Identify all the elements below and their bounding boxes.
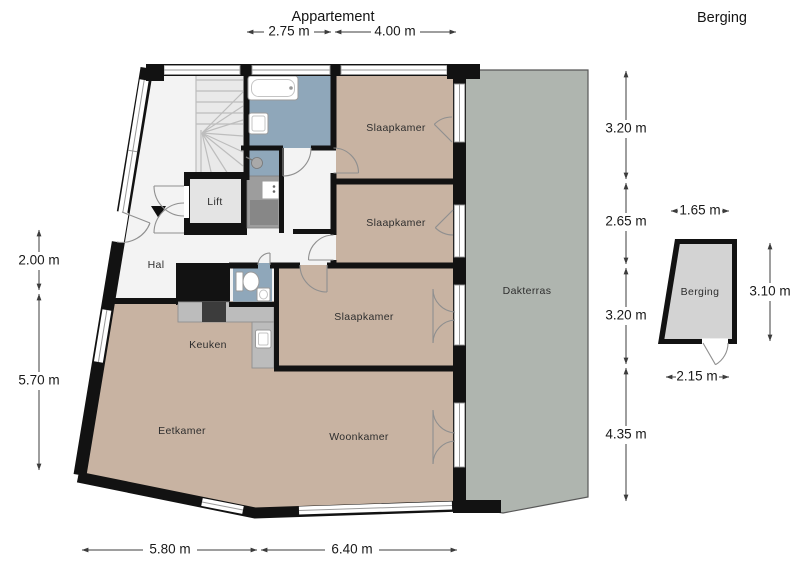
dim-label-berging-bottom: 2.15 m	[676, 369, 717, 384]
window	[252, 66, 330, 75]
window	[164, 66, 240, 75]
dakterras-area: Dakterras	[465, 70, 588, 513]
dim-label-right-1: 3.20 m	[605, 121, 646, 136]
wall-corner	[146, 64, 164, 81]
room-label-keuken: Keuken	[189, 339, 227, 351]
room-label-eetkamer: Eetkamer	[158, 425, 206, 437]
floorplan-page: Appartement Berging Dakterras	[0, 0, 800, 566]
stairs	[196, 68, 243, 176]
duct-block	[176, 263, 230, 305]
room-label-berging: Berging	[681, 286, 720, 298]
dim-label-berging-right: 3.10 m	[749, 284, 790, 299]
wall-corner	[453, 500, 501, 513]
window	[341, 66, 447, 75]
window	[299, 506, 452, 511]
terrace-door-slaapkamer-2	[454, 205, 464, 257]
stove	[202, 302, 226, 322]
apartment-title: Appartement	[291, 9, 374, 25]
dim-label-berging-top: 1.65 m	[679, 203, 720, 218]
dim-label-top-2: 4.00 m	[374, 24, 415, 39]
room-label-dakterras: Dakterras	[503, 285, 552, 297]
room-label-slaapkamer-3: Slaapkamer	[334, 311, 394, 323]
dim-label-right-3: 3.20 m	[605, 308, 646, 323]
wall-corner	[447, 64, 480, 79]
terrace-door-slaapkamer-1	[454, 84, 464, 142]
apartment-unit: Lift	[77, 64, 501, 513]
meter-box	[262, 181, 279, 199]
dim-label-bottom-1: 5.80 m	[149, 542, 190, 557]
terrace-double-door-slaapkamer-3	[454, 285, 464, 345]
berging-door	[703, 343, 728, 365]
entrance-door-gap	[117, 212, 122, 242]
dim-label-top-1: 2.75 m	[268, 24, 309, 39]
dim-label-right-2: 2.65 m	[605, 214, 646, 229]
room-label-slaapkamer-1: Slaapkamer	[366, 122, 426, 134]
lift-door-gap	[184, 186, 189, 218]
dim-label-left-2: 5.70 m	[18, 373, 59, 388]
room-label-slaapkamer-2: Slaapkamer	[366, 217, 426, 229]
room-label-lift: Lift	[207, 196, 222, 208]
bathroom-sink	[249, 113, 268, 134]
dim-label-left-1: 2.00 m	[18, 253, 59, 268]
top-wall	[146, 64, 465, 76]
lift-room: Lift	[184, 172, 247, 235]
technical-shaft	[247, 176, 281, 228]
berging-unit: Berging	[658, 239, 737, 365]
terrace-double-door-woonkamer	[454, 403, 464, 467]
floorplan-canvas: Appartement Berging Dakterras	[0, 0, 800, 566]
bathtub	[248, 76, 298, 100]
room-label-woonkamer: Woonkamer	[329, 431, 389, 443]
dim-label-bottom-2: 6.40 m	[331, 542, 372, 557]
dim-label-right-4: 4.35 m	[605, 427, 646, 442]
storage-title: Berging	[697, 10, 747, 26]
room-label-hal: Hal	[148, 259, 165, 271]
berging-door-gap	[702, 338, 728, 344]
